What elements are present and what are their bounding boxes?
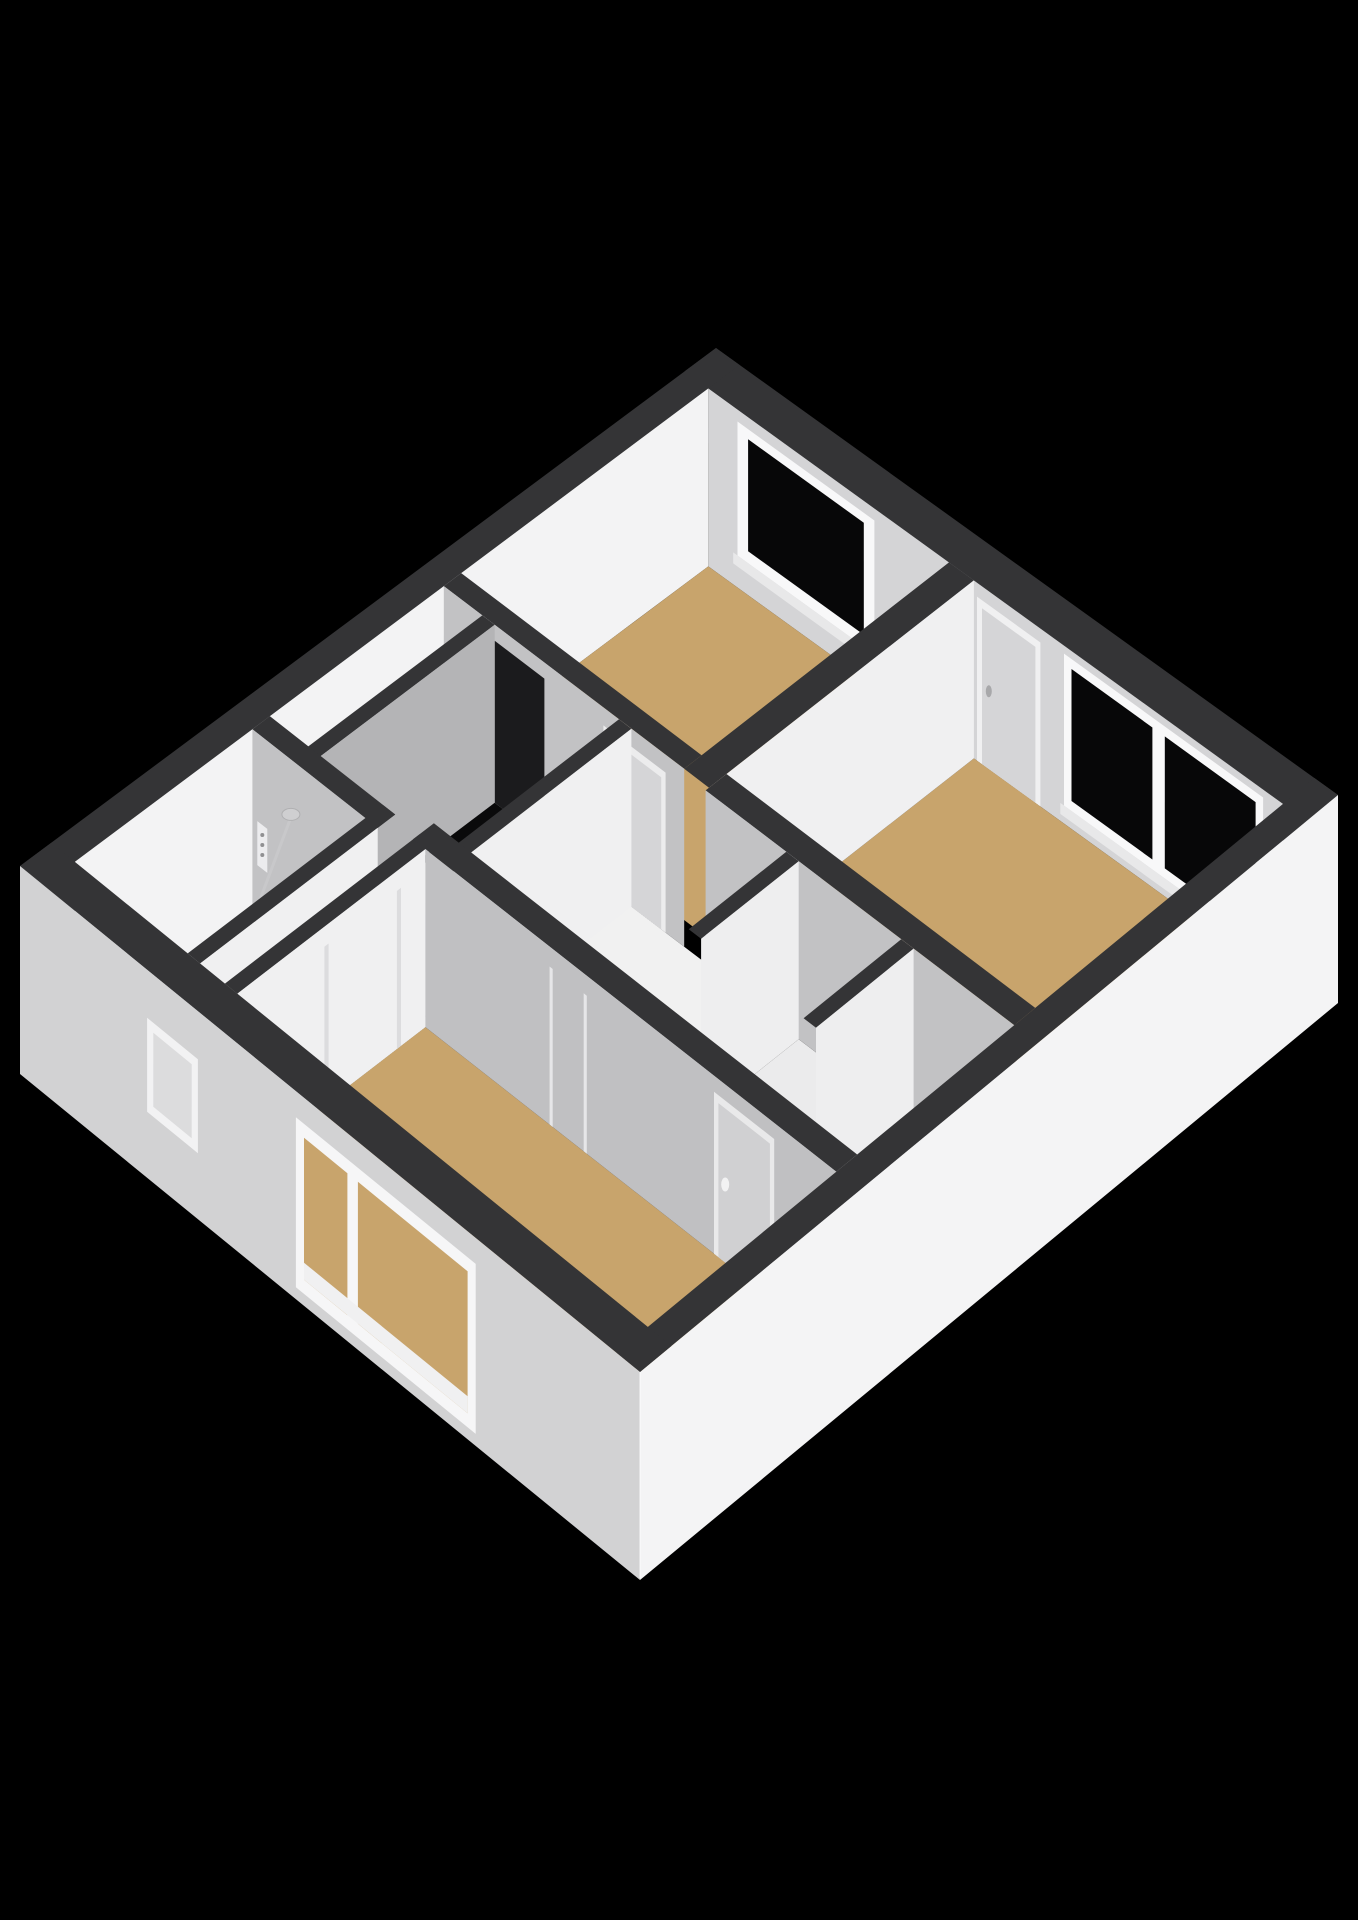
shower-control-knob-2 <box>260 843 264 847</box>
shower-head <box>282 808 300 820</box>
hall-door-frame-line-2 <box>584 993 587 1154</box>
floorplan-3d-view <box>0 0 1358 1920</box>
big-room-door-handle <box>986 685 992 697</box>
hall-door-frame-line-1 <box>550 967 553 1128</box>
bottom-room-left-door-frame-line-1 <box>397 888 401 1049</box>
shower-control-knob-1 <box>260 833 264 837</box>
bottom-room-door-handle <box>721 1178 729 1192</box>
shower-control-knob-3 <box>260 853 264 857</box>
floorplan-svg <box>0 0 1358 1920</box>
